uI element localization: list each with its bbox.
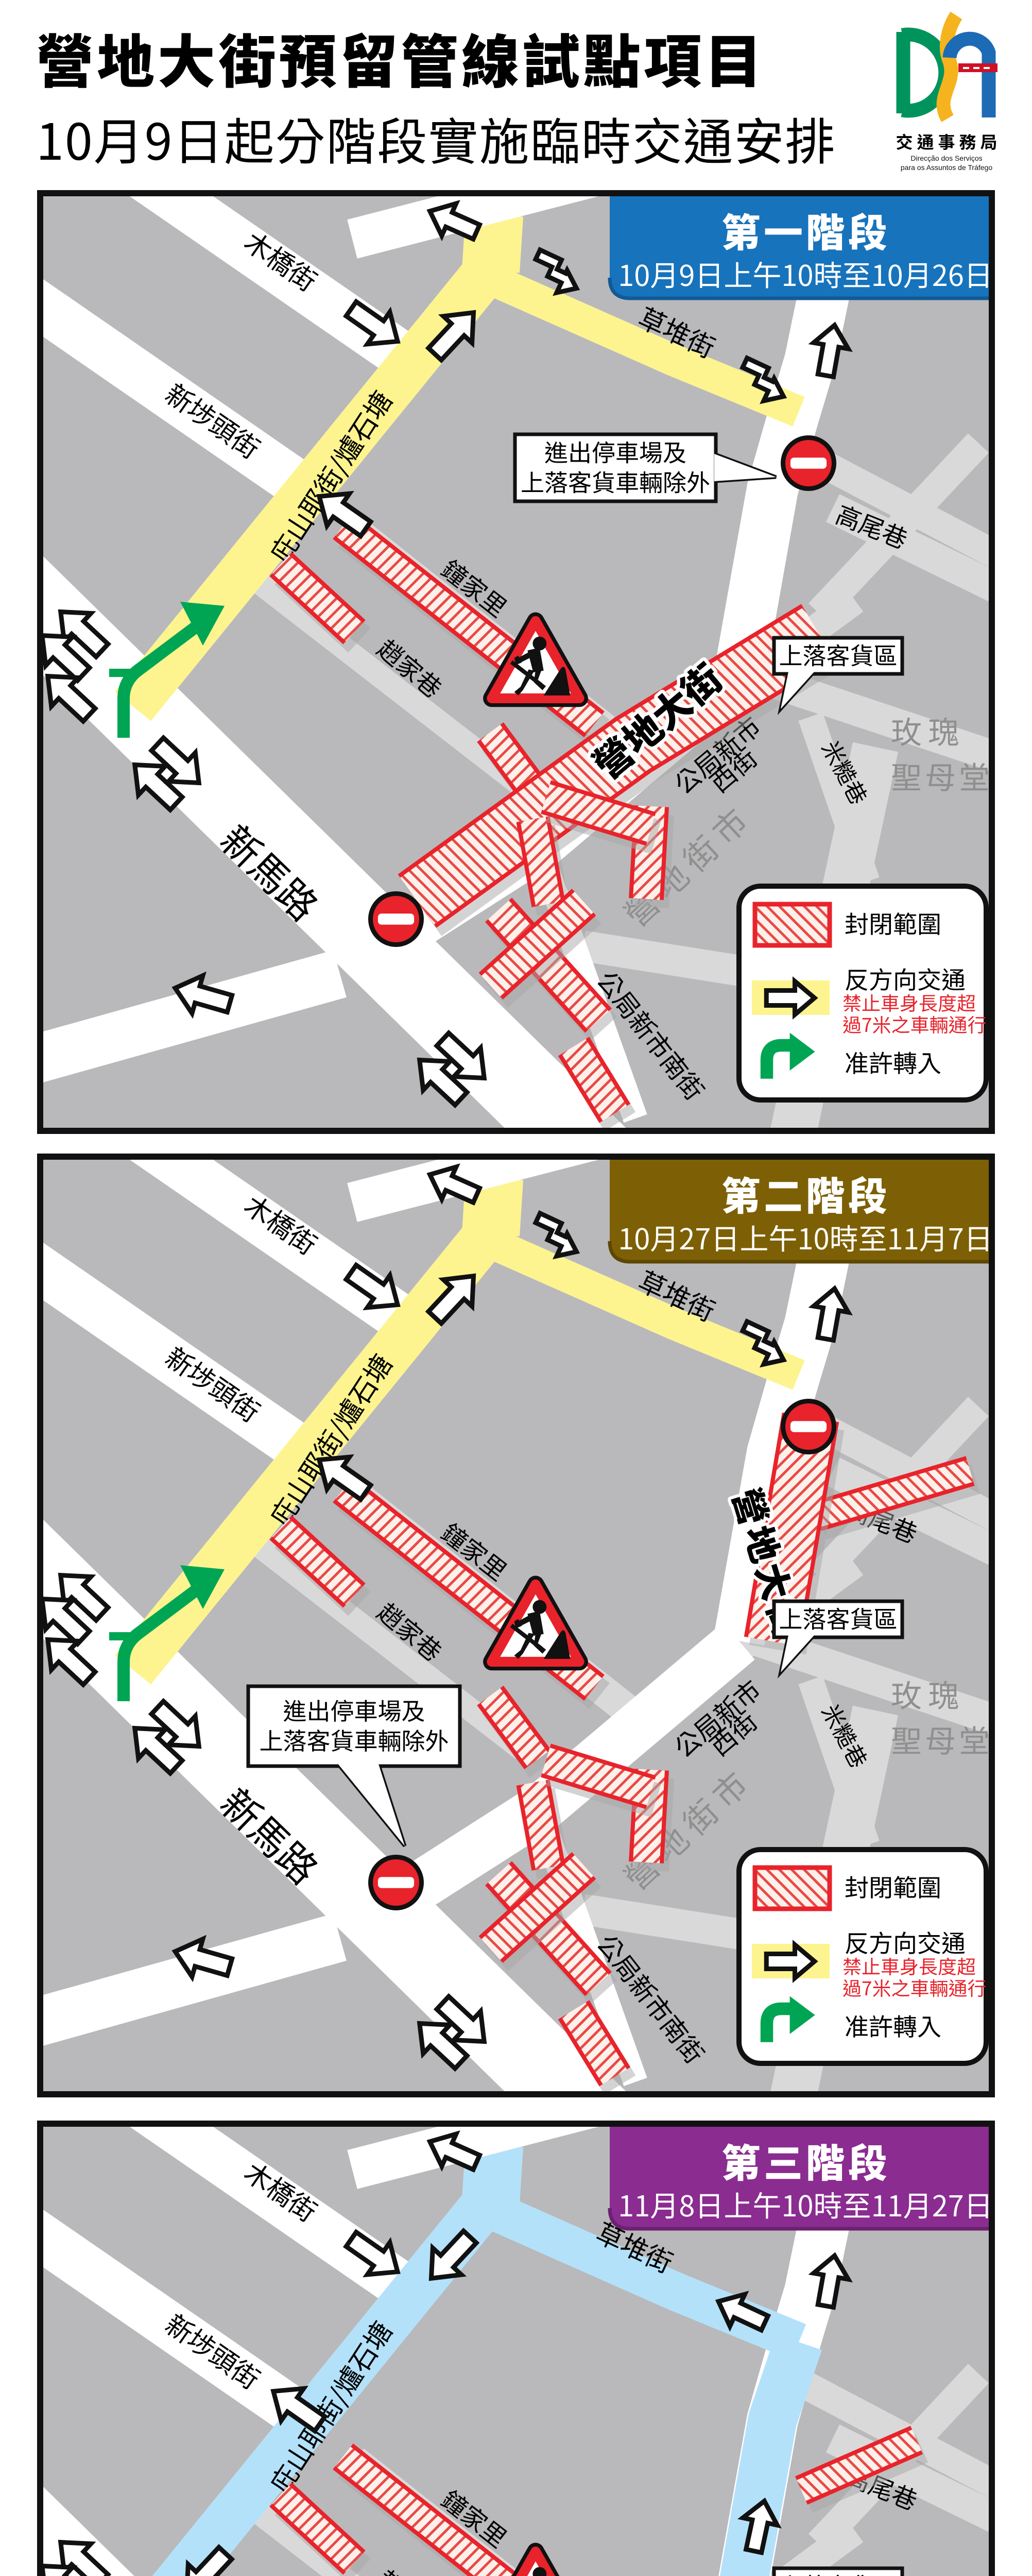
svg-text:Direcção dos Serviços: Direcção dos Serviços [910,154,982,162]
svg-text:para os Assuntos de Tráfego: para os Assuntos de Tráfego [901,163,992,172]
